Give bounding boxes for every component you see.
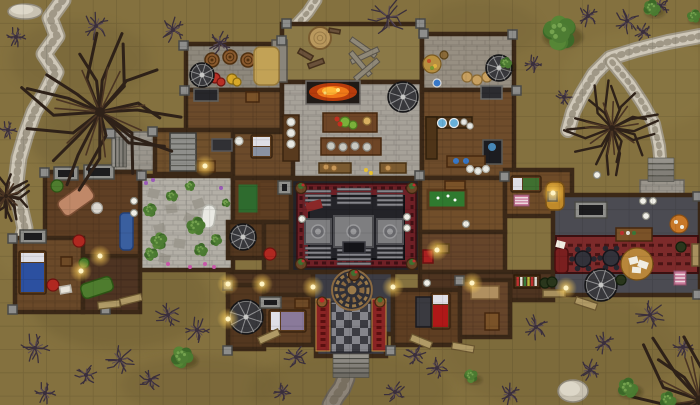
potted-plant xyxy=(676,242,686,252)
green-tree-highlight xyxy=(690,15,692,17)
hay-pile xyxy=(254,47,279,85)
green-tree-highlight xyxy=(561,27,566,32)
green-tree-highlight xyxy=(552,24,557,29)
pew-row xyxy=(337,258,371,261)
iron-stove xyxy=(212,139,232,151)
pew-row xyxy=(305,252,331,255)
barrel xyxy=(223,50,237,64)
fireplace xyxy=(20,230,46,243)
pew-row xyxy=(377,190,403,193)
barrel-bung xyxy=(211,59,214,62)
white-jug xyxy=(235,137,243,145)
garden-plant-highlight xyxy=(168,195,170,197)
dead-shrub-trunk xyxy=(294,355,298,359)
bookshelf-book xyxy=(517,277,519,286)
straight-staircase xyxy=(170,133,196,171)
stone-pier xyxy=(223,346,232,355)
green-tree-highlight xyxy=(623,383,626,386)
dead-shrub-trunk xyxy=(602,341,606,345)
white-jar xyxy=(483,166,490,173)
porch-steps-step xyxy=(120,137,123,167)
red-bed xyxy=(431,293,450,329)
side-entrance-steps xyxy=(648,158,674,182)
plate xyxy=(363,143,371,151)
flagstone xyxy=(165,203,177,213)
green-bed-pillow xyxy=(513,178,522,190)
door-marker xyxy=(299,216,306,223)
red-chaise xyxy=(555,248,568,273)
garden-plant-highlight xyxy=(147,206,149,208)
lantern-flame xyxy=(391,285,396,290)
bench xyxy=(692,244,699,266)
dark-table xyxy=(416,297,431,327)
green-tree-highlight xyxy=(663,398,665,400)
lantern-flame xyxy=(311,285,316,290)
food-item xyxy=(427,59,431,63)
dead-shrub-trunk xyxy=(14,35,18,39)
food-item xyxy=(430,66,434,70)
bread-table xyxy=(380,163,406,173)
green-tree-highlight xyxy=(470,372,472,374)
barrel-bung xyxy=(247,59,250,62)
garden-plant-highlight xyxy=(154,239,156,241)
red-armchair xyxy=(264,248,276,260)
green-tree-highlight xyxy=(505,59,507,61)
plate xyxy=(287,129,295,137)
boulder-highlight xyxy=(560,382,580,397)
garden-plant-highlight xyxy=(151,208,153,210)
barrel-bung xyxy=(229,56,232,59)
corner-urn xyxy=(407,183,418,194)
bookshelf-book xyxy=(527,277,529,286)
garden-plant-highlight xyxy=(197,249,199,251)
hearth-fire-ember xyxy=(336,88,340,92)
stone-pier xyxy=(386,346,395,355)
tomato xyxy=(338,122,343,127)
crate xyxy=(485,313,499,330)
corner-urn xyxy=(407,259,418,270)
pew-row xyxy=(377,252,403,255)
boulder-highlight xyxy=(11,5,34,15)
side-entrance-steps-step xyxy=(648,158,674,164)
bookshelf-book xyxy=(531,277,533,286)
entrance-steps xyxy=(333,354,369,378)
blue-bed-blanket xyxy=(21,263,44,292)
food-item xyxy=(427,59,431,63)
lantern-flame xyxy=(435,248,440,253)
purple-flower xyxy=(151,178,155,182)
garden-plant-highlight xyxy=(152,252,154,254)
stove xyxy=(481,86,502,99)
green-bed-blanket xyxy=(523,178,539,190)
lantern-flame xyxy=(564,286,569,291)
flagstone xyxy=(173,238,185,248)
garden-plant-highlight xyxy=(172,194,174,196)
fireplace-firebox xyxy=(282,184,287,191)
flagstone xyxy=(173,238,185,248)
dead-shrub-trunk xyxy=(166,313,170,317)
door-marker xyxy=(404,225,411,232)
garden-plant-highlight xyxy=(213,237,215,239)
axe xyxy=(329,28,341,34)
spiral-stair-post xyxy=(599,283,604,288)
pew-row xyxy=(337,202,371,205)
entrance-steps-step xyxy=(333,364,369,368)
dais-rosette-center xyxy=(315,229,321,235)
entry-urn xyxy=(349,270,360,281)
paper xyxy=(680,225,684,229)
garden-plant-highlight xyxy=(215,236,217,238)
side-entrance-steps-step xyxy=(648,176,674,182)
white-jug xyxy=(235,137,243,145)
dead-tree-trunk xyxy=(95,107,105,117)
red-bed-blanket xyxy=(433,305,448,327)
green-tree-highlight xyxy=(665,401,667,403)
green-tree-highlight xyxy=(622,386,625,389)
garden-plant-highlight xyxy=(198,246,200,248)
plate xyxy=(287,118,295,126)
dead-shrub-trunk xyxy=(171,28,175,32)
door-marker xyxy=(594,172,601,179)
mosaic-center xyxy=(348,286,357,295)
pew-row xyxy=(377,199,403,202)
green-tree-highlight xyxy=(178,358,181,361)
spiral-stair xyxy=(388,82,418,112)
stone-pier xyxy=(106,129,115,138)
dead-shrub-trunk xyxy=(641,30,645,34)
garden-plant-highlight xyxy=(190,224,193,227)
stone-pier xyxy=(277,36,286,45)
red-armchair xyxy=(47,279,59,291)
orange-table xyxy=(670,215,688,233)
dais-rosette-center xyxy=(387,229,393,235)
red-armchair xyxy=(264,248,276,260)
nightstand xyxy=(61,257,72,266)
garden-plant-highlight xyxy=(148,250,150,252)
wash-counter xyxy=(426,117,437,159)
dead-shrub-trunk xyxy=(43,391,47,395)
billiard-ball xyxy=(454,199,457,202)
dead-shrub-trunk xyxy=(84,373,88,377)
spiral-stair-post xyxy=(401,95,406,100)
table-with-chairs-chair xyxy=(591,256,597,262)
green-tree-highlight xyxy=(180,350,183,353)
stone-pier xyxy=(419,29,428,38)
entrance-steps-step xyxy=(333,373,369,377)
spiral-stair xyxy=(585,269,617,301)
stove xyxy=(194,89,218,101)
plate xyxy=(287,140,295,148)
pew-row xyxy=(337,263,371,266)
plate xyxy=(287,129,295,137)
billiard-ball xyxy=(447,195,450,198)
lantern-flame xyxy=(551,191,556,196)
lantern-flame xyxy=(470,281,475,286)
flour-sack xyxy=(472,75,482,85)
red-chaise xyxy=(555,248,568,273)
dead-shrub-trunk xyxy=(280,390,284,394)
green-bed xyxy=(511,176,541,192)
lantern-flame xyxy=(260,282,265,287)
bread-loaf xyxy=(385,165,391,171)
dead-shrub-trunk xyxy=(625,19,629,23)
pink-flower xyxy=(212,265,216,269)
garden-plant-highlight xyxy=(190,184,192,186)
green-tree-highlight xyxy=(506,61,508,63)
dead-shrub-branch xyxy=(95,12,96,26)
paper xyxy=(680,225,684,229)
chopping-stump xyxy=(309,27,331,49)
entrance-steps-step xyxy=(333,354,369,358)
green-tree-highlight xyxy=(503,63,505,65)
food-bowl xyxy=(363,117,371,125)
green-tree-highlight xyxy=(695,14,697,16)
blue-couch xyxy=(120,213,133,250)
billiard-ball xyxy=(454,199,457,202)
cabbage xyxy=(349,121,357,129)
garden-plant-highlight xyxy=(198,250,200,252)
door-marker xyxy=(404,214,411,221)
nightstand xyxy=(61,257,72,266)
entrance-steps-step xyxy=(333,359,369,363)
corner-urn xyxy=(296,183,307,194)
pew-row xyxy=(305,190,331,193)
plate xyxy=(339,143,347,151)
dead-shrub-trunk xyxy=(435,366,439,370)
white-jar xyxy=(475,168,482,175)
servant-bed xyxy=(251,135,272,158)
wash-basin xyxy=(450,119,459,128)
garden-plant-highlight xyxy=(191,221,194,224)
garden-plant-highlight xyxy=(192,227,195,230)
food-bowl xyxy=(363,117,371,125)
stone-pier xyxy=(512,86,521,95)
garden-plant-highlight xyxy=(149,206,151,208)
dead-shrub-trunk xyxy=(508,392,512,396)
corner-urn xyxy=(296,259,307,270)
dresser xyxy=(445,181,465,190)
dead-shrub-trunk xyxy=(195,328,199,332)
green-plant xyxy=(378,298,383,303)
flagstone xyxy=(165,203,177,213)
garden-plant-highlight xyxy=(147,210,149,212)
plate xyxy=(287,140,295,148)
plate xyxy=(287,118,295,126)
apple-sack xyxy=(217,78,225,86)
garden-plant-highlight xyxy=(202,248,204,250)
garden-plant-highlight xyxy=(197,223,200,226)
white-jar xyxy=(483,166,490,173)
podium xyxy=(343,242,365,253)
grain-sack xyxy=(233,78,241,86)
table-with-chairs xyxy=(575,251,591,267)
chopping-stump xyxy=(309,27,331,49)
garden-plant-highlight xyxy=(216,238,218,240)
pew-row xyxy=(305,195,331,198)
flour-sack xyxy=(472,75,482,85)
dead-shrub-trunk xyxy=(33,346,37,350)
green-tree-highlight xyxy=(653,5,655,7)
pew-row xyxy=(377,204,403,207)
green-plant xyxy=(378,298,383,303)
door-marker xyxy=(131,210,138,217)
bread-loaf xyxy=(331,165,337,171)
blue-bowl xyxy=(433,79,441,87)
green-tree-highlight xyxy=(664,396,666,398)
fireplace-firebox xyxy=(24,233,42,240)
purple-bed-blanket xyxy=(281,312,304,330)
garden-plant-highlight xyxy=(158,236,160,238)
green-tree-highlight xyxy=(550,29,555,34)
purple-bed xyxy=(269,310,306,332)
garden-plant-highlight xyxy=(150,250,152,252)
stone-pier xyxy=(40,168,49,177)
dead-shrub-trunk xyxy=(534,325,538,329)
green-tree-highlight xyxy=(651,3,653,5)
wash-basin xyxy=(438,119,447,128)
stone-pier xyxy=(8,305,17,314)
dead-shrub-trunk xyxy=(681,345,685,349)
billiard-ball xyxy=(437,197,440,200)
stove xyxy=(481,86,502,99)
plate xyxy=(363,143,371,151)
spiral-stair-post xyxy=(241,235,246,240)
garden-plant-highlight xyxy=(147,253,149,255)
pink-flower xyxy=(188,265,192,269)
door-marker xyxy=(650,198,657,205)
garden-plant-highlight xyxy=(213,240,215,242)
green-tree-highlight xyxy=(691,16,693,18)
spiral-stair-post xyxy=(244,315,249,320)
garden-plant-highlight xyxy=(169,196,171,198)
map-paper xyxy=(632,267,641,274)
spiral-stair xyxy=(190,63,214,87)
dead-tree-trunk xyxy=(4,194,8,198)
pew-row xyxy=(377,195,403,198)
stool xyxy=(440,51,448,59)
table-with-chairs-chair xyxy=(569,256,575,262)
gold-coins xyxy=(364,168,368,172)
stool xyxy=(440,51,448,59)
green-tree-highlight xyxy=(647,6,649,8)
outdoor-bench xyxy=(98,300,121,309)
lantern-flame xyxy=(203,164,208,169)
flour-sack xyxy=(462,72,472,82)
door-marker xyxy=(131,198,138,205)
plate xyxy=(351,142,359,150)
bench xyxy=(692,244,699,266)
plate xyxy=(351,142,359,150)
green-tree-highlight xyxy=(691,12,693,14)
room-west-corridor-floor-texture xyxy=(264,222,293,272)
green-tree-highlight xyxy=(472,374,474,376)
billiard-ball xyxy=(447,195,450,198)
potted-plant xyxy=(676,242,686,252)
dead-shrub-trunk xyxy=(413,353,417,357)
dead-shrub-trunk xyxy=(393,390,397,394)
pew-row xyxy=(337,188,371,191)
green-tree-highlight xyxy=(468,372,470,374)
pink-flower xyxy=(166,262,170,266)
green-tree-highlight xyxy=(557,23,562,28)
green-tree-highlight xyxy=(183,353,186,356)
tomato xyxy=(338,122,343,127)
dead-shrub-trunk xyxy=(118,358,122,362)
door-marker xyxy=(424,280,431,287)
cup xyxy=(467,123,473,129)
wash-basin xyxy=(438,119,447,128)
battle-map xyxy=(0,0,700,405)
pew-row xyxy=(337,254,371,257)
food-item xyxy=(430,66,434,70)
garden-plant-highlight xyxy=(148,254,150,256)
dead-shrub-trunk xyxy=(586,14,590,18)
red-armchair xyxy=(73,235,85,247)
billiard-ball xyxy=(437,197,440,200)
stone-pier xyxy=(500,172,509,181)
dead-shrub-trunk xyxy=(562,95,566,99)
porch-steps-step xyxy=(112,137,115,167)
purple-bed-pillow xyxy=(271,312,280,330)
gold-coins xyxy=(364,168,368,172)
garden-plant-highlight xyxy=(187,183,189,185)
stone-pier xyxy=(8,234,17,243)
garden-plant-highlight xyxy=(156,242,158,244)
entry-urn-bloom xyxy=(355,271,358,274)
blue-couch xyxy=(120,213,133,250)
green-tree-highlight xyxy=(667,395,669,397)
dais-rosette-center xyxy=(351,229,357,235)
plate xyxy=(327,142,335,150)
garden-plant-highlight xyxy=(195,220,198,223)
bookshelf-book xyxy=(520,277,522,286)
tomato xyxy=(335,117,340,122)
map-canvas xyxy=(0,0,700,405)
striped-mat xyxy=(514,195,529,206)
stone-pier xyxy=(148,127,157,136)
purple-flower xyxy=(144,181,148,185)
dresser xyxy=(445,181,465,190)
pew-row xyxy=(337,193,371,196)
dresser xyxy=(295,299,309,308)
lantern-flame xyxy=(98,254,103,259)
pew-row xyxy=(337,197,371,200)
dead-shrub-trunk xyxy=(386,15,390,19)
pink-flower xyxy=(203,262,207,266)
orange-table xyxy=(670,215,688,233)
apple-sack xyxy=(217,78,225,86)
red-flowers xyxy=(320,298,325,303)
dead-shrub-trunk xyxy=(218,41,222,45)
hay-pile xyxy=(254,47,279,85)
garden-plant-highlight xyxy=(226,201,228,203)
garden-plant-highlight xyxy=(200,246,202,248)
dresser xyxy=(295,299,309,308)
plate xyxy=(327,142,335,150)
red-flowers xyxy=(320,298,325,303)
dead-shrub-trunk xyxy=(6,128,10,132)
map-paper xyxy=(632,267,641,274)
plate xyxy=(339,143,347,151)
green-tree-highlight xyxy=(626,382,629,385)
billiard-table xyxy=(428,190,466,208)
stone-pier xyxy=(137,171,146,180)
garden-plant-highlight xyxy=(171,192,173,194)
green-tree-highlight xyxy=(669,397,671,399)
porch-steps xyxy=(112,137,127,167)
entrance-steps-step xyxy=(333,368,369,372)
lantern-flame xyxy=(226,317,231,322)
